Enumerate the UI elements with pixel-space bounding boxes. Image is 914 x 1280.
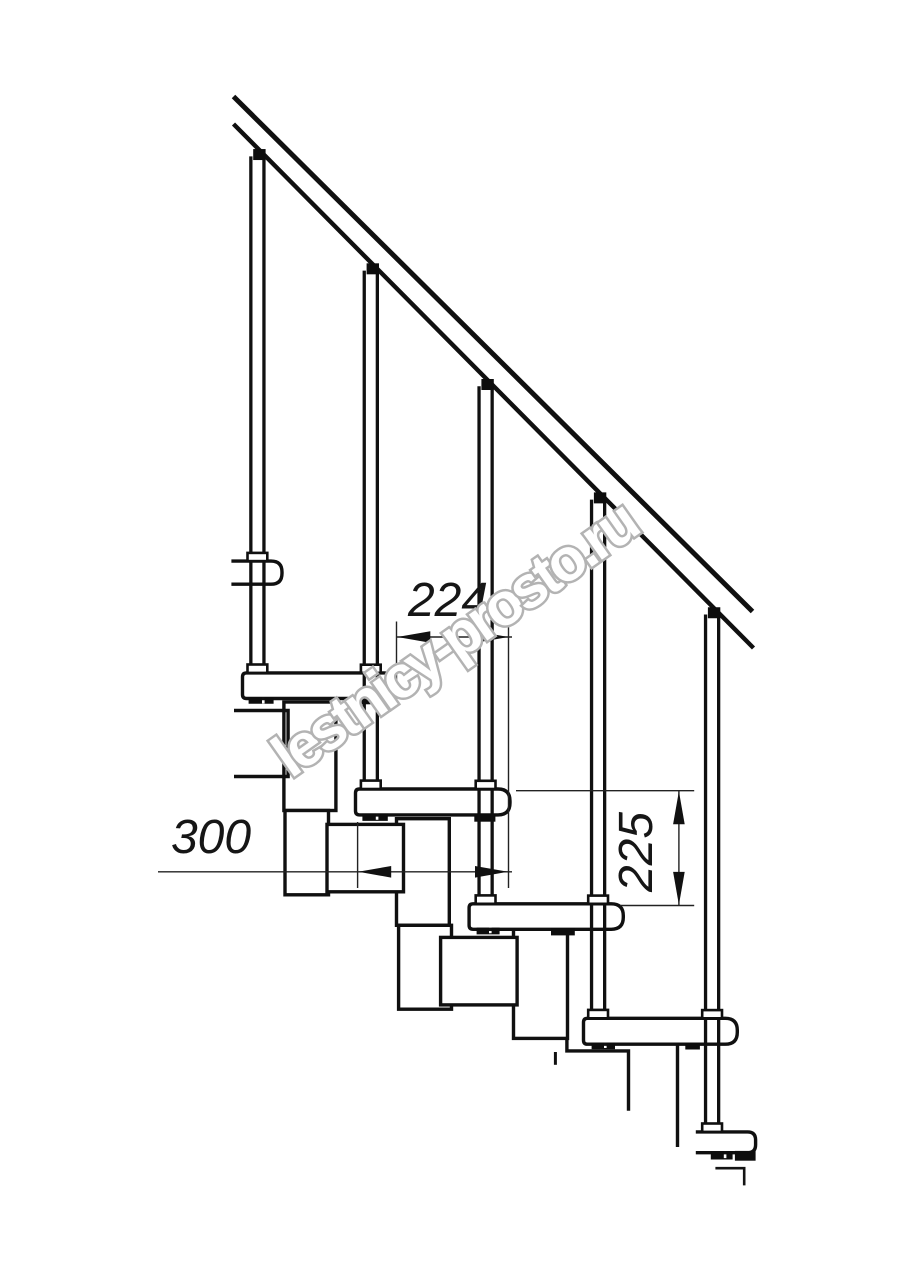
svg-text:300: 300 [171,811,251,864]
svg-text:225: 225 [610,812,663,893]
